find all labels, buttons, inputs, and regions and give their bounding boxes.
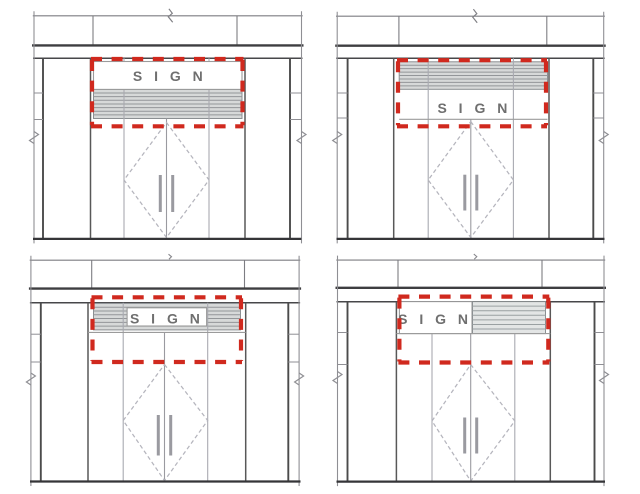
svg-text:S I G N: S I G N [130,311,204,327]
svg-text:S I G N: S I G N [437,100,511,116]
svg-text:S I G N: S I G N [398,311,472,327]
svg-text:S I G N: S I G N [133,68,207,84]
